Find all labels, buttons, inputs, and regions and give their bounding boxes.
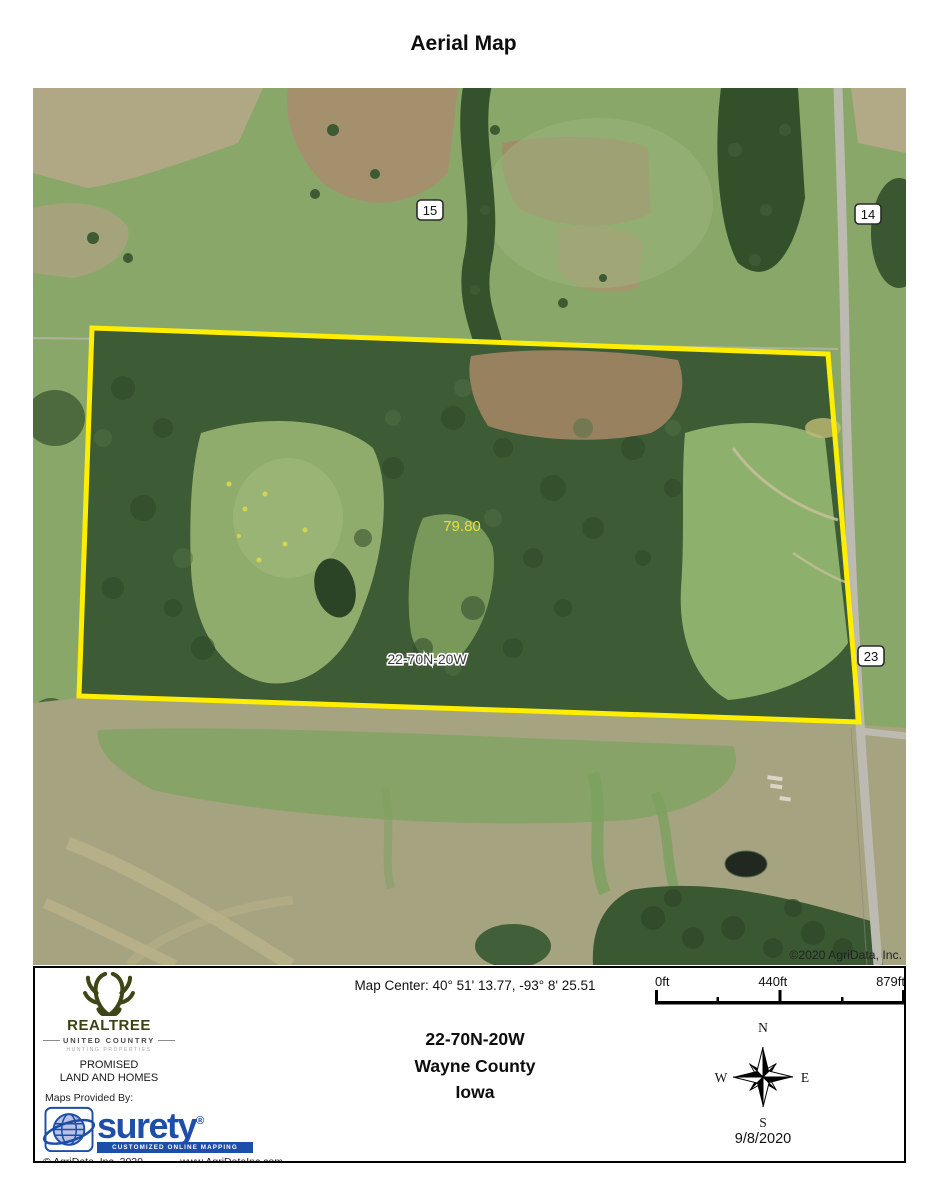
pond bbox=[725, 851, 767, 877]
realtree-wordmark: REALTREE bbox=[67, 1017, 151, 1034]
section-badge-14: 14 bbox=[855, 204, 881, 224]
surety-globe-icon bbox=[43, 1105, 95, 1153]
aerial-map-canvas: 15 14 23 79.80 22-70N-20W ©2020 AgriData… bbox=[33, 88, 906, 965]
location-trs: 22-70N-20W bbox=[325, 1026, 625, 1053]
scale-bar: 0ft 440ft 879ft bbox=[655, 974, 905, 1011]
united-country-label: UNITED COUNTRY bbox=[43, 1036, 175, 1045]
map-copyright: ©2020 AgriData, Inc. bbox=[789, 948, 902, 962]
footer-panel: REALTREE UNITED COUNTRY HUNTING PROPERTI… bbox=[33, 966, 906, 1163]
agridata-website: www.AgriDataInc.com bbox=[180, 1156, 283, 1163]
acreage-label: 79.80 bbox=[443, 518, 481, 535]
branding-column: REALTREE UNITED COUNTRY HUNTING PROPERTI… bbox=[43, 972, 287, 1163]
compass-rose: N W E S bbox=[711, 1018, 815, 1135]
svg-text:23: 23 bbox=[864, 649, 878, 664]
compass-west-label: W bbox=[715, 1070, 728, 1085]
aerial-map: 15 14 23 79.80 22-70N-20W ©2020 AgriData… bbox=[33, 88, 906, 965]
surety-tagline: CUSTOMIZED ONLINE MAPPING bbox=[97, 1142, 253, 1153]
scale-bar-graphic bbox=[655, 990, 905, 1006]
realtree-antlers-icon bbox=[78, 972, 140, 1016]
page-title: Aerial Map bbox=[0, 32, 927, 56]
trs-map-label: 22-70N-20W bbox=[387, 651, 467, 667]
surety-logo: surety® CUSTOMIZED ONLINE MAPPING bbox=[43, 1105, 287, 1153]
maps-provided-by-label: Maps Provided By: bbox=[45, 1092, 287, 1104]
scale-end-label: 879ft bbox=[876, 974, 905, 989]
compass-east-label: E bbox=[801, 1070, 809, 1085]
map-date: 9/8/2020 bbox=[711, 1131, 815, 1147]
surety-wordmark: surety® bbox=[97, 1105, 253, 1142]
agridata-copyright: © AgriData, Inc. 2020 bbox=[43, 1156, 143, 1163]
section-badge-23: 23 bbox=[858, 646, 884, 666]
scale-start-label: 0ft bbox=[655, 974, 669, 989]
compass-north-label: N bbox=[758, 1020, 768, 1035]
scale-mid-label: 440ft bbox=[758, 974, 787, 989]
compass-south-label: S bbox=[759, 1115, 767, 1130]
section-badge-15: 15 bbox=[417, 200, 443, 220]
agridata-credit-row: © AgriData, Inc. 2020 www.AgriDataInc.co… bbox=[43, 1156, 283, 1163]
map-center-coordinates: Map Center: 40° 51' 13.77, -93° 8' 25.51 bbox=[285, 978, 665, 993]
location-county: Wayne County bbox=[325, 1053, 625, 1080]
realtree-logo: REALTREE UNITED COUNTRY HUNTING PROPERTI… bbox=[43, 972, 175, 1085]
hunting-properties-label: HUNTING PROPERTIES bbox=[66, 1047, 151, 1053]
promised-land-label: PROMISED LAND AND HOMES bbox=[60, 1059, 158, 1085]
svg-text:14: 14 bbox=[861, 207, 875, 222]
location-state: Iowa bbox=[325, 1079, 625, 1106]
svg-text:15: 15 bbox=[423, 203, 437, 218]
location-block: 22-70N-20W Wayne County Iowa bbox=[325, 1026, 625, 1106]
